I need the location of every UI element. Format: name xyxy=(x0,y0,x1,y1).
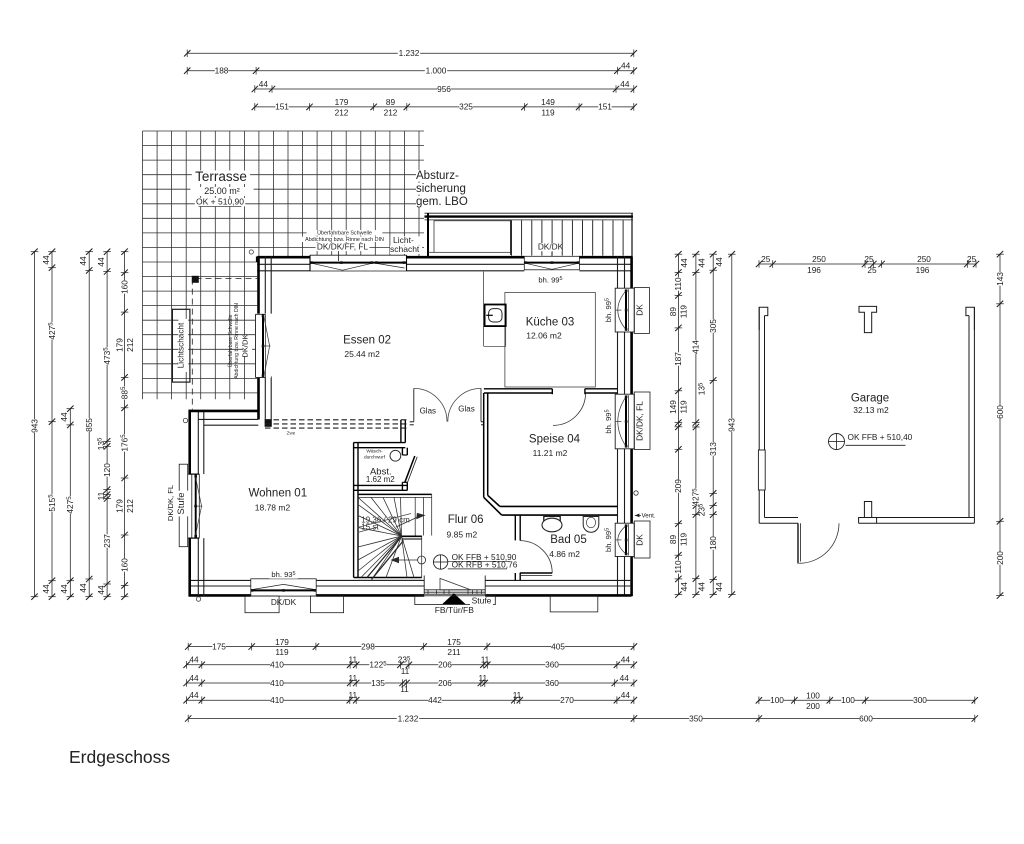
svg-text:Abdichtung bzw. Rinne nach DIN: Abdichtung bzw. Rinne nach DIN xyxy=(234,303,240,379)
svg-text:44: 44 xyxy=(679,582,689,592)
svg-text:300: 300 xyxy=(913,695,927,705)
svg-text:Terrasse: Terrasse xyxy=(195,169,247,184)
svg-text:110: 110 xyxy=(673,560,683,574)
svg-text:100: 100 xyxy=(841,695,855,705)
svg-text:FB/Tür/FB: FB/Tür/FB xyxy=(435,605,475,615)
svg-text:Stufe: Stufe xyxy=(176,492,187,514)
svg-text:Erdgeschoss: Erdgeschoss xyxy=(69,747,170,767)
svg-text:Wohnen 01: Wohnen 01 xyxy=(248,488,307,500)
svg-text:25: 25 xyxy=(967,254,977,264)
svg-text:196: 196 xyxy=(807,265,821,275)
svg-text:100: 100 xyxy=(806,691,820,701)
svg-text:25.00 m²: 25.00 m² xyxy=(204,186,240,196)
svg-text:Speise 04: Speise 04 xyxy=(529,434,581,446)
svg-text:135: 135 xyxy=(371,678,385,688)
svg-text:1.62 m2: 1.62 m2 xyxy=(366,475,395,484)
svg-text:44: 44 xyxy=(189,655,199,665)
svg-text:44: 44 xyxy=(621,690,631,700)
svg-text:149: 149 xyxy=(541,97,555,107)
svg-text:durchwurf: durchwurf xyxy=(364,454,386,460)
svg-text:410: 410 xyxy=(270,695,284,705)
svg-text:44: 44 xyxy=(96,257,106,267)
svg-text:179: 179 xyxy=(114,499,124,513)
svg-text:110: 110 xyxy=(673,277,683,291)
svg-text:298: 298 xyxy=(361,641,375,651)
svg-text:405: 405 xyxy=(551,641,565,651)
svg-text:44: 44 xyxy=(714,582,724,592)
svg-text:1.232: 1.232 xyxy=(399,48,420,58)
svg-text:DK/DK: DK/DK xyxy=(271,597,297,607)
svg-text:44: 44 xyxy=(189,690,199,700)
svg-text:414: 414 xyxy=(691,340,701,354)
svg-text:187: 187 xyxy=(673,352,683,366)
svg-text:Überfahrbare Schwelle: Überfahrbare Schwelle xyxy=(317,229,372,236)
svg-text:Glas: Glas xyxy=(420,407,436,416)
svg-text:44: 44 xyxy=(679,258,689,268)
svg-text:89: 89 xyxy=(668,307,678,317)
svg-text:bh. 995: bh. 995 xyxy=(604,298,613,322)
svg-text:179: 179 xyxy=(114,338,124,352)
svg-text:237: 237 xyxy=(102,534,112,548)
svg-text:89: 89 xyxy=(668,535,678,545)
svg-text:212: 212 xyxy=(335,108,349,118)
svg-text:270: 270 xyxy=(560,695,574,705)
svg-text:89: 89 xyxy=(386,97,396,107)
svg-text:11: 11 xyxy=(513,690,522,700)
svg-text:25.44 m2: 25.44 m2 xyxy=(344,349,380,359)
svg-text:44: 44 xyxy=(189,673,199,683)
svg-text:Garage: Garage xyxy=(851,393,889,405)
svg-text:410: 410 xyxy=(270,678,284,688)
svg-text:bh. 995: bh. 995 xyxy=(604,409,613,433)
svg-text:151: 151 xyxy=(275,102,289,112)
svg-text:44: 44 xyxy=(620,79,630,89)
svg-text:DK/DK: DK/DK xyxy=(538,242,564,252)
svg-text:360: 360 xyxy=(545,660,559,670)
svg-text:Zwe: Zwe xyxy=(287,431,296,436)
svg-text:119: 119 xyxy=(679,305,689,319)
svg-text:44: 44 xyxy=(78,256,88,266)
svg-text:44: 44 xyxy=(41,584,51,594)
svg-text:188: 188 xyxy=(215,66,229,76)
svg-text:943: 943 xyxy=(727,418,737,432)
svg-text:44: 44 xyxy=(621,61,631,71)
svg-text:gem. LBO: gem. LBO xyxy=(416,196,468,208)
svg-text:119: 119 xyxy=(679,533,689,547)
svg-text:410: 410 xyxy=(270,660,284,670)
svg-text:179: 179 xyxy=(335,97,349,107)
svg-text:Lichtschacht: Lichtschacht xyxy=(177,322,186,368)
svg-text:44: 44 xyxy=(96,585,106,595)
svg-text:Essen 02: Essen 02 xyxy=(343,335,391,347)
svg-text:44: 44 xyxy=(697,258,707,268)
svg-text:DK: DK xyxy=(634,534,644,546)
svg-text:143: 143 xyxy=(995,272,1005,286)
svg-text:11: 11 xyxy=(478,673,487,683)
svg-text:44: 44 xyxy=(41,255,51,265)
svg-text:325: 325 xyxy=(459,102,473,112)
svg-text:200: 200 xyxy=(806,701,820,711)
svg-text:25: 25 xyxy=(864,254,874,264)
svg-text:Überfahrbare Schwelle: Überfahrbare Schwelle xyxy=(227,315,234,368)
svg-text:Küche 03: Küche 03 xyxy=(526,317,575,329)
svg-text:206: 206 xyxy=(438,678,452,688)
svg-text:11: 11 xyxy=(400,684,409,694)
svg-text:DK: DK xyxy=(634,304,644,316)
svg-text:Bad 05: Bad 05 xyxy=(550,534,586,546)
svg-text:206: 206 xyxy=(438,660,452,670)
svg-text:11: 11 xyxy=(401,666,410,676)
svg-text:4.86 m2: 4.86 m2 xyxy=(549,549,580,559)
svg-text:schacht: schacht xyxy=(390,244,420,254)
svg-text:DK/DK: DK/DK xyxy=(241,334,250,357)
svg-text:149: 149 xyxy=(668,400,678,414)
svg-text:Absturz-: Absturz- xyxy=(416,170,459,182)
svg-text:bh. 995: bh. 995 xyxy=(604,528,613,552)
svg-text:DK/DK, FL: DK/DK, FL xyxy=(634,401,644,441)
svg-text:Glas: Glas xyxy=(458,405,474,414)
svg-text:212: 212 xyxy=(125,338,135,352)
svg-text:bh. 995: bh. 995 xyxy=(538,275,562,284)
svg-text:44: 44 xyxy=(697,582,707,592)
svg-text:DK/DK, FL: DK/DK, FL xyxy=(166,485,175,521)
svg-text:11: 11 xyxy=(348,673,357,683)
svg-text:44: 44 xyxy=(620,673,630,683)
svg-text:196: 196 xyxy=(916,265,930,275)
svg-text:100: 100 xyxy=(770,695,784,705)
svg-text:211: 211 xyxy=(447,647,461,657)
svg-text:Wäsch-: Wäsch- xyxy=(366,449,383,455)
svg-text:Flur 06: Flur 06 xyxy=(448,514,484,526)
svg-text:160: 160 xyxy=(119,280,129,294)
svg-text:200: 200 xyxy=(995,551,1005,565)
svg-text:Stufe: Stufe xyxy=(472,596,492,606)
svg-text:956: 956 xyxy=(437,84,451,94)
svg-text:250: 250 xyxy=(812,254,826,264)
svg-text:44: 44 xyxy=(78,583,88,593)
svg-text:250: 250 xyxy=(917,254,931,264)
svg-text:179: 179 xyxy=(275,637,289,647)
svg-text:160: 160 xyxy=(119,558,129,572)
svg-text:11: 11 xyxy=(348,655,357,665)
svg-text:44: 44 xyxy=(259,79,269,89)
svg-text:25: 25 xyxy=(867,265,877,275)
svg-text:855: 855 xyxy=(84,418,94,432)
svg-text:9.85 m2: 9.85 m2 xyxy=(447,530,478,540)
svg-text:120: 120 xyxy=(102,463,112,477)
svg-text:44: 44 xyxy=(59,584,69,594)
svg-text:OK FFB + 510,40: OK FFB + 510,40 xyxy=(848,432,913,442)
svg-text:119: 119 xyxy=(275,647,289,657)
svg-text:18.78 m2: 18.78 m2 xyxy=(255,503,291,513)
svg-text:151: 151 xyxy=(598,102,612,112)
svg-text:212: 212 xyxy=(125,499,135,513)
svg-text:44: 44 xyxy=(59,412,69,422)
svg-text:OK + 510,90: OK + 510,90 xyxy=(196,197,244,207)
svg-text:44: 44 xyxy=(714,257,724,267)
svg-text:305: 305 xyxy=(708,319,718,333)
svg-text:119: 119 xyxy=(679,400,689,414)
svg-text:943: 943 xyxy=(29,419,39,433)
svg-text:600: 600 xyxy=(859,713,873,723)
svg-text:313: 313 xyxy=(708,442,718,456)
svg-text:360: 360 xyxy=(545,678,559,688)
svg-text:DK/DK/FF, FL: DK/DK/FF, FL xyxy=(317,241,369,251)
svg-text:44: 44 xyxy=(621,655,631,665)
svg-text:11: 11 xyxy=(481,655,490,665)
svg-text:11: 11 xyxy=(348,690,357,700)
svg-text:350: 350 xyxy=(689,713,703,723)
svg-text:175: 175 xyxy=(212,641,226,651)
svg-text:212: 212 xyxy=(384,108,398,118)
svg-text:209: 209 xyxy=(673,479,683,493)
svg-text:25: 25 xyxy=(761,254,771,264)
svg-text:bh. 935: bh. 935 xyxy=(271,570,295,579)
svg-text:180: 180 xyxy=(708,536,718,550)
svg-text:11.21 m2: 11.21 m2 xyxy=(533,448,568,458)
svg-text:1.000: 1.000 xyxy=(426,66,447,76)
svg-text:119: 119 xyxy=(541,108,555,118)
svg-text:1.232: 1.232 xyxy=(398,713,419,723)
svg-text:12.06 m2: 12.06 m2 xyxy=(526,331,562,341)
svg-text:11: 11 xyxy=(96,491,106,500)
svg-text:442: 442 xyxy=(428,695,442,705)
svg-text:600: 600 xyxy=(995,405,1005,419)
svg-text:sicherung: sicherung xyxy=(416,183,466,195)
svg-text:Vent.: Vent. xyxy=(642,513,656,520)
svg-text:32.13 m2: 32.13 m2 xyxy=(853,405,889,415)
svg-text:175: 175 xyxy=(447,637,461,647)
